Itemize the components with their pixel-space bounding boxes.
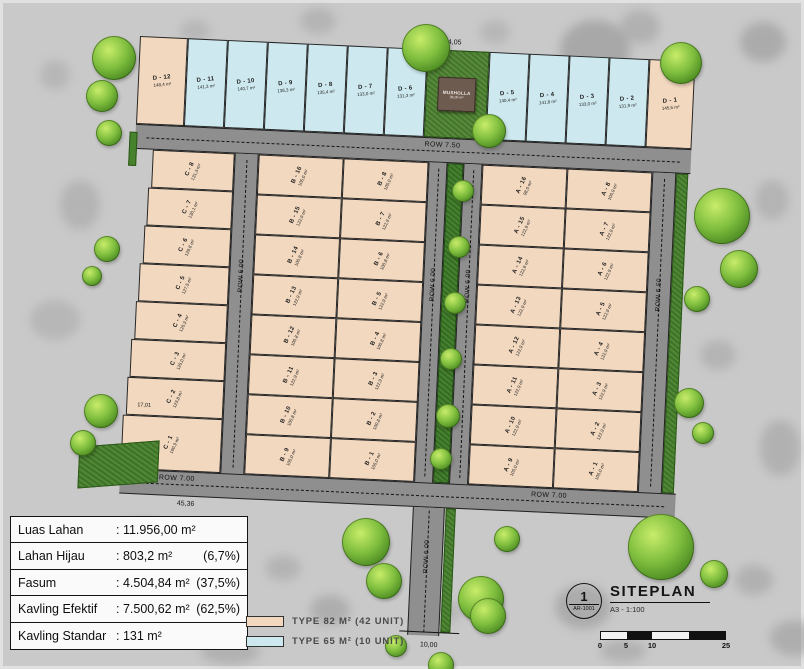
road-centerline (233, 160, 248, 467)
lot-area: 131,9 m² (619, 102, 637, 109)
lot-label: A - 5122,9 m² (594, 300, 612, 321)
lot-label: A - 11122,9 m² (506, 376, 524, 397)
lot-label: D - 2131,9 m² (618, 95, 637, 109)
lot-label: B - 1105,0 m² (363, 449, 381, 470)
texture-blob (60, 180, 100, 230)
scale-tick: 10 (648, 641, 656, 650)
lot-label: B - 9105,0 m² (278, 446, 296, 467)
summary-text: : 7.500,62 m² (116, 602, 190, 616)
texture-blob (40, 60, 70, 90)
scale-segment (652, 632, 688, 639)
lot-area: 138,3 m² (277, 87, 295, 94)
main-blocks: C - 8131,3 m²C - 7130,1 m²C - 6128,8 m²C… (120, 149, 690, 494)
summary-text: Kavling Standar (18, 629, 116, 643)
lot-label: B - 12100,8 m² (284, 326, 302, 347)
lot-label: C - 4126,3 m² (172, 312, 190, 333)
lot-label: D - 6131,3 m² (396, 85, 415, 99)
lot-C-2: C - 2123,8 m² (125, 377, 224, 419)
tree-icon (86, 80, 118, 112)
texture-blob (620, 10, 660, 44)
lot-A-13: A - 13122,9 m² (475, 285, 562, 329)
lot-A-1: A - 1105,0 m² (553, 448, 640, 492)
tree-icon (366, 563, 402, 599)
entrance-road-surface: ROW 6.00 (407, 507, 445, 636)
lot-label: B - 4100,8 m² (369, 330, 387, 351)
lot-A-2: A - 2122,9 m² (555, 408, 642, 452)
lot-label: B - 14100,8 m² (287, 246, 305, 267)
texture-blob (770, 620, 804, 656)
lot-B-9: B - 9105,0 m² (244, 434, 331, 478)
legend-label: TYPE 65 M² (10 UNIT) (292, 636, 404, 647)
lot-D-2: D - 2131,9 m² (606, 57, 650, 147)
road-label-bottom-left: ROW 7.00 (159, 474, 195, 483)
lot-B-4: B - 4100,8 m² (335, 318, 422, 362)
lot-label: D - 8135,4 m² (316, 82, 335, 96)
drawing-number: 1 (569, 590, 598, 605)
lot-B-1: B - 1105,0 m² (329, 438, 416, 482)
lot-B-12: B - 12100,8 m² (250, 314, 337, 358)
lot-area: 135,4 m² (317, 89, 335, 96)
legend-label: TYPE 82 M² (42 UNIT) (292, 616, 404, 627)
tree-icon (342, 518, 390, 566)
lot-label: C - 3125,0 m² (169, 349, 187, 370)
site-plan: D - 12148,4 m²D - 11141,3 m²D - 10140,7 … (119, 36, 695, 519)
lot-C-6: C - 6128,8 m² (142, 225, 231, 267)
lot-D-11: D - 11141,3 m² (184, 38, 228, 128)
summary-text: Lahan Hijau (18, 549, 116, 563)
road-centerline (650, 179, 665, 486)
tree-icon (674, 388, 704, 418)
summary-text: Kavling Efektif (18, 602, 116, 616)
dimension-bottom-left: 45,36 (177, 500, 195, 508)
texture-blob (30, 300, 80, 340)
lot-A-7: A - 7122,9 m² (564, 208, 651, 252)
tree-icon (82, 266, 102, 286)
musholla-building: MUSHOLLA 36,00 m² (437, 77, 477, 113)
lot-label: D - 11141,3 m² (197, 76, 216, 90)
lot-area: 145,5 m² (662, 104, 680, 111)
tree-icon (470, 598, 506, 634)
lot-label: D - 7133,0 m² (356, 83, 375, 97)
title-block: 1 AR-1001 SITEPLAN A3 - 1:100 051025 (566, 583, 746, 651)
scale-segment (601, 632, 627, 639)
lot-B-8: B - 8105,0 m² (342, 158, 429, 202)
lot-label: A - 12122,9 m² (508, 336, 526, 357)
lot-label: D - 9138,3 m² (276, 80, 295, 94)
lot-label: C - 5127,5 m² (175, 274, 193, 295)
scale-tick: 25 (722, 641, 730, 650)
lot-label: C - 8131,3 m² (184, 160, 202, 181)
lot-area: 140,7 m² (237, 85, 255, 92)
tree-icon (448, 236, 470, 258)
sheet-code: AR-1001 (573, 605, 595, 612)
summary-text: (37,5%) (196, 576, 240, 590)
lot-C-5: C - 5127,5 m² (138, 263, 230, 305)
road-label-entrance: ROW 6.00 (422, 539, 431, 573)
lot-B-15: B - 15122,9 m² (255, 194, 342, 238)
lot-A-10: A - 10122,9 m² (470, 404, 557, 448)
tree-icon (472, 114, 506, 148)
scale-tick: 5 (624, 641, 628, 650)
tree-icon (94, 236, 120, 262)
lot-A-3: A - 3122,9 m² (557, 368, 644, 412)
tree-icon (494, 526, 520, 552)
summary-row: Kavling Standar: 131 m² (10, 622, 248, 650)
texture-blob (760, 420, 800, 476)
d-lots-left: D - 12148,4 m²D - 11141,3 m²D - 10140,7 … (136, 36, 428, 137)
texture-blob (265, 555, 301, 581)
tree-icon (720, 250, 758, 288)
tree-icon (70, 430, 96, 456)
lot-label: A - 13122,9 m² (509, 296, 527, 317)
lot-B-5: B - 5122,9 m² (336, 278, 423, 322)
drawing-title: SITEPLAN (610, 583, 710, 603)
road-label-top: ROW 7.50 (424, 141, 460, 150)
lot-label: B - 10100,8 m² (280, 405, 298, 426)
lot-label: B - 11122,9 m² (282, 366, 300, 387)
lot-label: B - 8105,0 m² (376, 170, 394, 191)
summary-text: : 4.504,84 m² (116, 576, 190, 590)
lot-label: B - 6100,8 m² (372, 250, 390, 271)
lot-A-8: A - 8106,9 m² (566, 169, 653, 213)
lot-type-legend: TYPE 82 M² (42 UNIT)TYPE 65 M² (10 UNIT) (246, 611, 404, 651)
summary-row: Luas Lahan: 11.956,00 m² (10, 516, 248, 544)
a-lot-block: A - 1698,0 m²A - 15122,9 m²A - 14122,9 m… (468, 165, 652, 492)
legend-item: TYPE 82 M² (42 UNIT) (246, 611, 404, 631)
tree-icon (430, 448, 452, 470)
tree-icon (660, 42, 702, 84)
lot-label: B - 3122,9 m² (367, 369, 385, 390)
lot-B-3: B - 3122,9 m² (333, 358, 420, 402)
tree-icon (694, 188, 750, 244)
lot-label: A - 10122,9 m² (504, 416, 522, 437)
tree-icon (452, 180, 474, 202)
lot-label: D - 4141,8 m² (538, 92, 557, 106)
lot-label: A - 7122,9 m² (598, 220, 616, 241)
scale-segment (627, 632, 653, 639)
summary-text: (6,7%) (203, 549, 240, 563)
summary-text: : 803,2 m² (116, 549, 172, 563)
musholla-area-label: 36,00 m² (450, 95, 464, 100)
tree-icon (92, 36, 136, 80)
entrance-dimension: 10,00 (398, 630, 459, 653)
tree-icon (402, 24, 450, 72)
legend-swatch (246, 636, 284, 647)
texture-blob (755, 180, 789, 220)
lot-B-13: B - 13122,9 m² (251, 274, 338, 318)
lot-A-14: A - 14122,9 m² (477, 245, 564, 289)
lot-label: C - 2123,8 m² (166, 387, 184, 408)
summary-text: Luas Lahan (18, 523, 116, 537)
lot-C-4: C - 4126,3 m² (134, 301, 228, 343)
lot-A-12: A - 12122,9 m² (473, 325, 560, 369)
lot-B-7: B - 7122,9 m² (340, 198, 427, 242)
lot-C-8: C - 8131,3 m² (151, 150, 235, 192)
green-sliver-left (128, 132, 138, 166)
road-label-left: ROW 6.00 (237, 259, 246, 293)
lot-label: B - 15122,9 m² (289, 206, 307, 227)
b-lot-block: B - 16105,0 m²B - 15122,9 m²B - 14100,8 … (244, 155, 428, 482)
lot-label: D - 3133,0 m² (578, 94, 597, 108)
lot-D-8: D - 8135,4 m² (304, 44, 348, 134)
land-summary-table: Luas Lahan: 11.956,00 m²Lahan Hijau: 803… (10, 517, 248, 650)
tree-icon (436, 404, 460, 428)
entrance-road: ROW 6.00 10,00 (407, 507, 459, 637)
texture-blob (740, 22, 786, 62)
lot-label: B - 13122,9 m² (286, 286, 304, 307)
summary-row: Fasum: 4.504,84 m²(37,5%) (10, 569, 248, 597)
lot-label: D - 12148,4 m² (152, 74, 171, 88)
lot-label: A - 14122,9 m² (511, 256, 529, 277)
siteplan-drawing: D - 12148,4 m²D - 11141,3 m²D - 10140,7 … (0, 0, 804, 669)
texture-blob (480, 20, 510, 44)
summary-text: : 131 m² (116, 629, 162, 643)
lot-area: 131,3 m² (397, 92, 415, 99)
tree-icon (628, 514, 694, 580)
dimension-text: 10,00 (420, 641, 438, 649)
lot-B-11: B - 11122,9 m² (248, 354, 335, 398)
lot-label: A - 2122,9 m² (589, 420, 607, 441)
lot-D-7: D - 7133,0 m² (344, 45, 388, 135)
drawing-scale: A3 - 1:100 (610, 605, 710, 614)
tree-icon (96, 120, 122, 146)
lot-D-3: D - 3133,0 m² (566, 56, 610, 146)
lot-area: 141,3 m² (197, 83, 215, 90)
lot-label: A - 6122,9 m² (596, 260, 614, 281)
lot-label: C - 6128,8 m² (178, 236, 196, 257)
lot-D-12: D - 12148,4 m² (136, 36, 188, 126)
lot-D-4: D - 4141,8 m² (526, 54, 570, 144)
lot-label: A - 1698,0 m² (515, 176, 533, 197)
lot-B-14: B - 14100,8 m² (253, 234, 340, 278)
lot-B-6: B - 6100,8 m² (338, 238, 425, 282)
road-label-median-left: ROW 6.00 (428, 267, 437, 301)
legend-item: TYPE 65 M² (10 UNIT) (246, 631, 404, 651)
lot-A-5: A - 5122,9 m² (560, 288, 647, 332)
lot-C-7: C - 7130,1 m² (146, 188, 233, 230)
lot-D-10: D - 10140,7 m² (224, 40, 268, 130)
lot-label: A - 4122,9 m² (593, 340, 611, 361)
lot-D-9: D - 9138,3 m² (264, 42, 308, 132)
tree-icon (428, 652, 454, 669)
summary-text: (62,5%) (196, 602, 240, 616)
lot-label: A - 3122,9 m² (591, 380, 609, 401)
lot-label: D - 5140,4 m² (498, 90, 517, 104)
summary-text: : 11.956,00 m² (116, 523, 196, 537)
lot-label: A - 1105,0 m² (587, 460, 605, 481)
scale-tick: 0 (598, 641, 602, 650)
tree-icon (692, 422, 714, 444)
lot-label: B - 7122,9 m² (374, 210, 392, 231)
lot-area: 133,0 m² (579, 101, 597, 108)
lot-C-3: C - 3125,0 m² (130, 339, 227, 381)
lot-B-16: B - 16105,0 m² (257, 155, 344, 199)
lot-label: A - 15122,9 m² (513, 216, 531, 237)
graphic-scale-bar: 051025 (600, 631, 726, 651)
lot-label: C - 1160,9 m² (162, 433, 180, 454)
lot-area: 133,0 m² (357, 90, 375, 97)
summary-row: Kavling Efektif: 7.500,62 m²(62,5%) (10, 595, 248, 623)
lot-label: C - 7130,1 m² (181, 198, 199, 219)
lot-A-16: A - 1698,0 m² (481, 165, 568, 209)
lot-A-15: A - 15122,9 m² (479, 205, 566, 249)
lot-B-2: B - 2100,8 m² (331, 398, 418, 442)
lot-A-11: A - 11122,9 m² (472, 364, 559, 408)
drawing-number-bubble: 1 AR-1001 (566, 583, 602, 619)
summary-row: Lahan Hijau: 803,2 m²(6,7%) (10, 542, 248, 570)
road-label-right: ROW 6.50 (655, 277, 664, 311)
lot-A-9: A - 9105,0 m² (468, 444, 555, 488)
legend-swatch (246, 616, 284, 627)
tree-icon (440, 348, 462, 370)
lot-label: D - 1145,5 m² (661, 97, 680, 111)
lot-area: 140,4 m² (499, 97, 517, 104)
texture-blob (700, 340, 736, 370)
lot-label: D - 10140,7 m² (236, 78, 255, 92)
scale-bar-ticks: 051025 (600, 640, 726, 651)
lot-A-6: A - 6122,9 m² (562, 248, 649, 292)
lot-A-4: A - 4122,9 m² (558, 328, 645, 372)
tree-icon (684, 286, 710, 312)
dimension-c1: 17,01 (137, 402, 151, 409)
texture-blob (300, 8, 336, 34)
scale-segment (689, 632, 725, 639)
lot-area: 141,8 m² (539, 99, 557, 106)
lot-label: B - 2100,8 m² (365, 409, 383, 430)
c-lot-column: C - 8131,3 m²C - 7130,1 m²C - 6128,8 m²C… (120, 149, 234, 473)
lot-label: A - 8106,9 m² (600, 180, 618, 201)
lot-label: A - 9105,0 m² (502, 456, 520, 477)
tree-icon (444, 292, 466, 314)
road-label-bottom-right: ROW 7.00 (531, 491, 567, 500)
lot-area: 148,4 m² (153, 81, 171, 88)
lot-label: B - 5122,9 m² (371, 290, 389, 311)
lot-label: B - 16105,0 m² (291, 166, 309, 187)
scale-bar-segments (600, 631, 726, 640)
summary-text: Fasum (18, 576, 116, 590)
lot-B-10: B - 10100,8 m² (246, 394, 333, 438)
tree-icon (84, 394, 118, 428)
